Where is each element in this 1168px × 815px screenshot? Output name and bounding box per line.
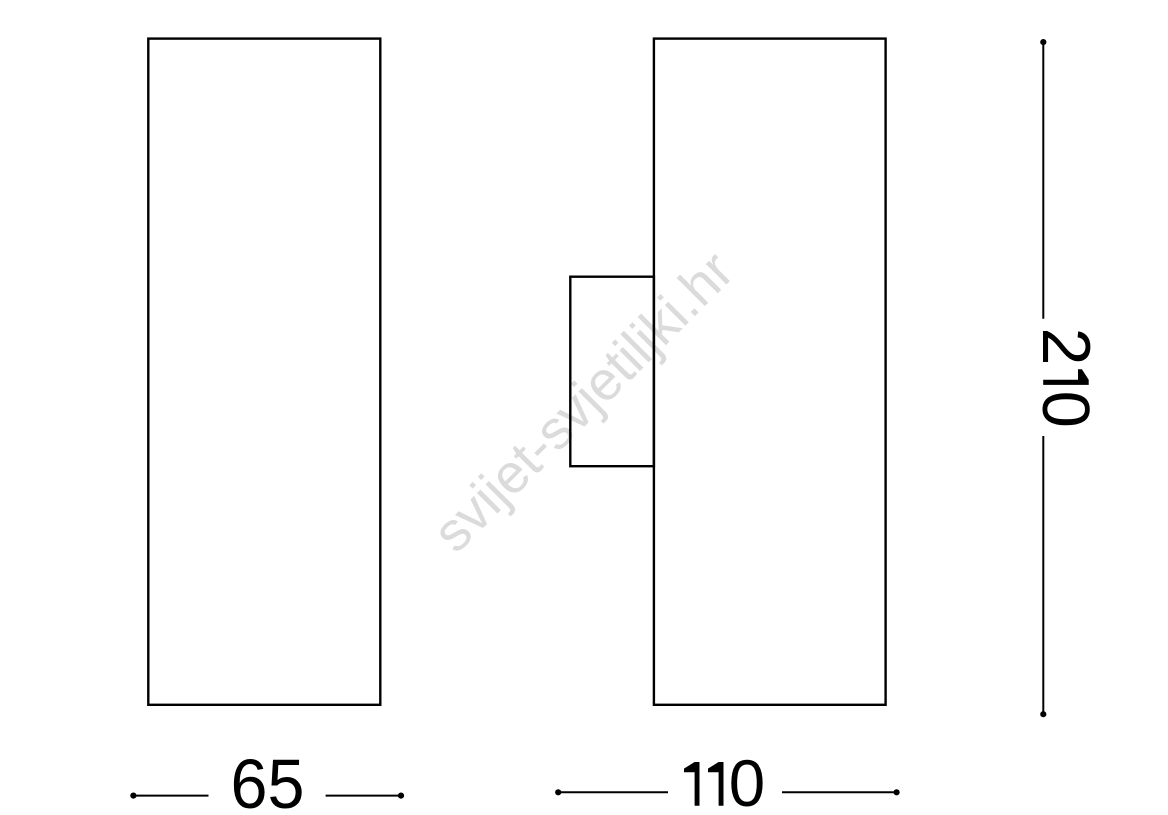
svg-text:0: 0 xyxy=(729,747,765,815)
svg-text:2: 2 xyxy=(1028,328,1104,366)
svg-text:0: 0 xyxy=(1028,391,1103,428)
svg-text:65: 65 xyxy=(231,745,305,815)
